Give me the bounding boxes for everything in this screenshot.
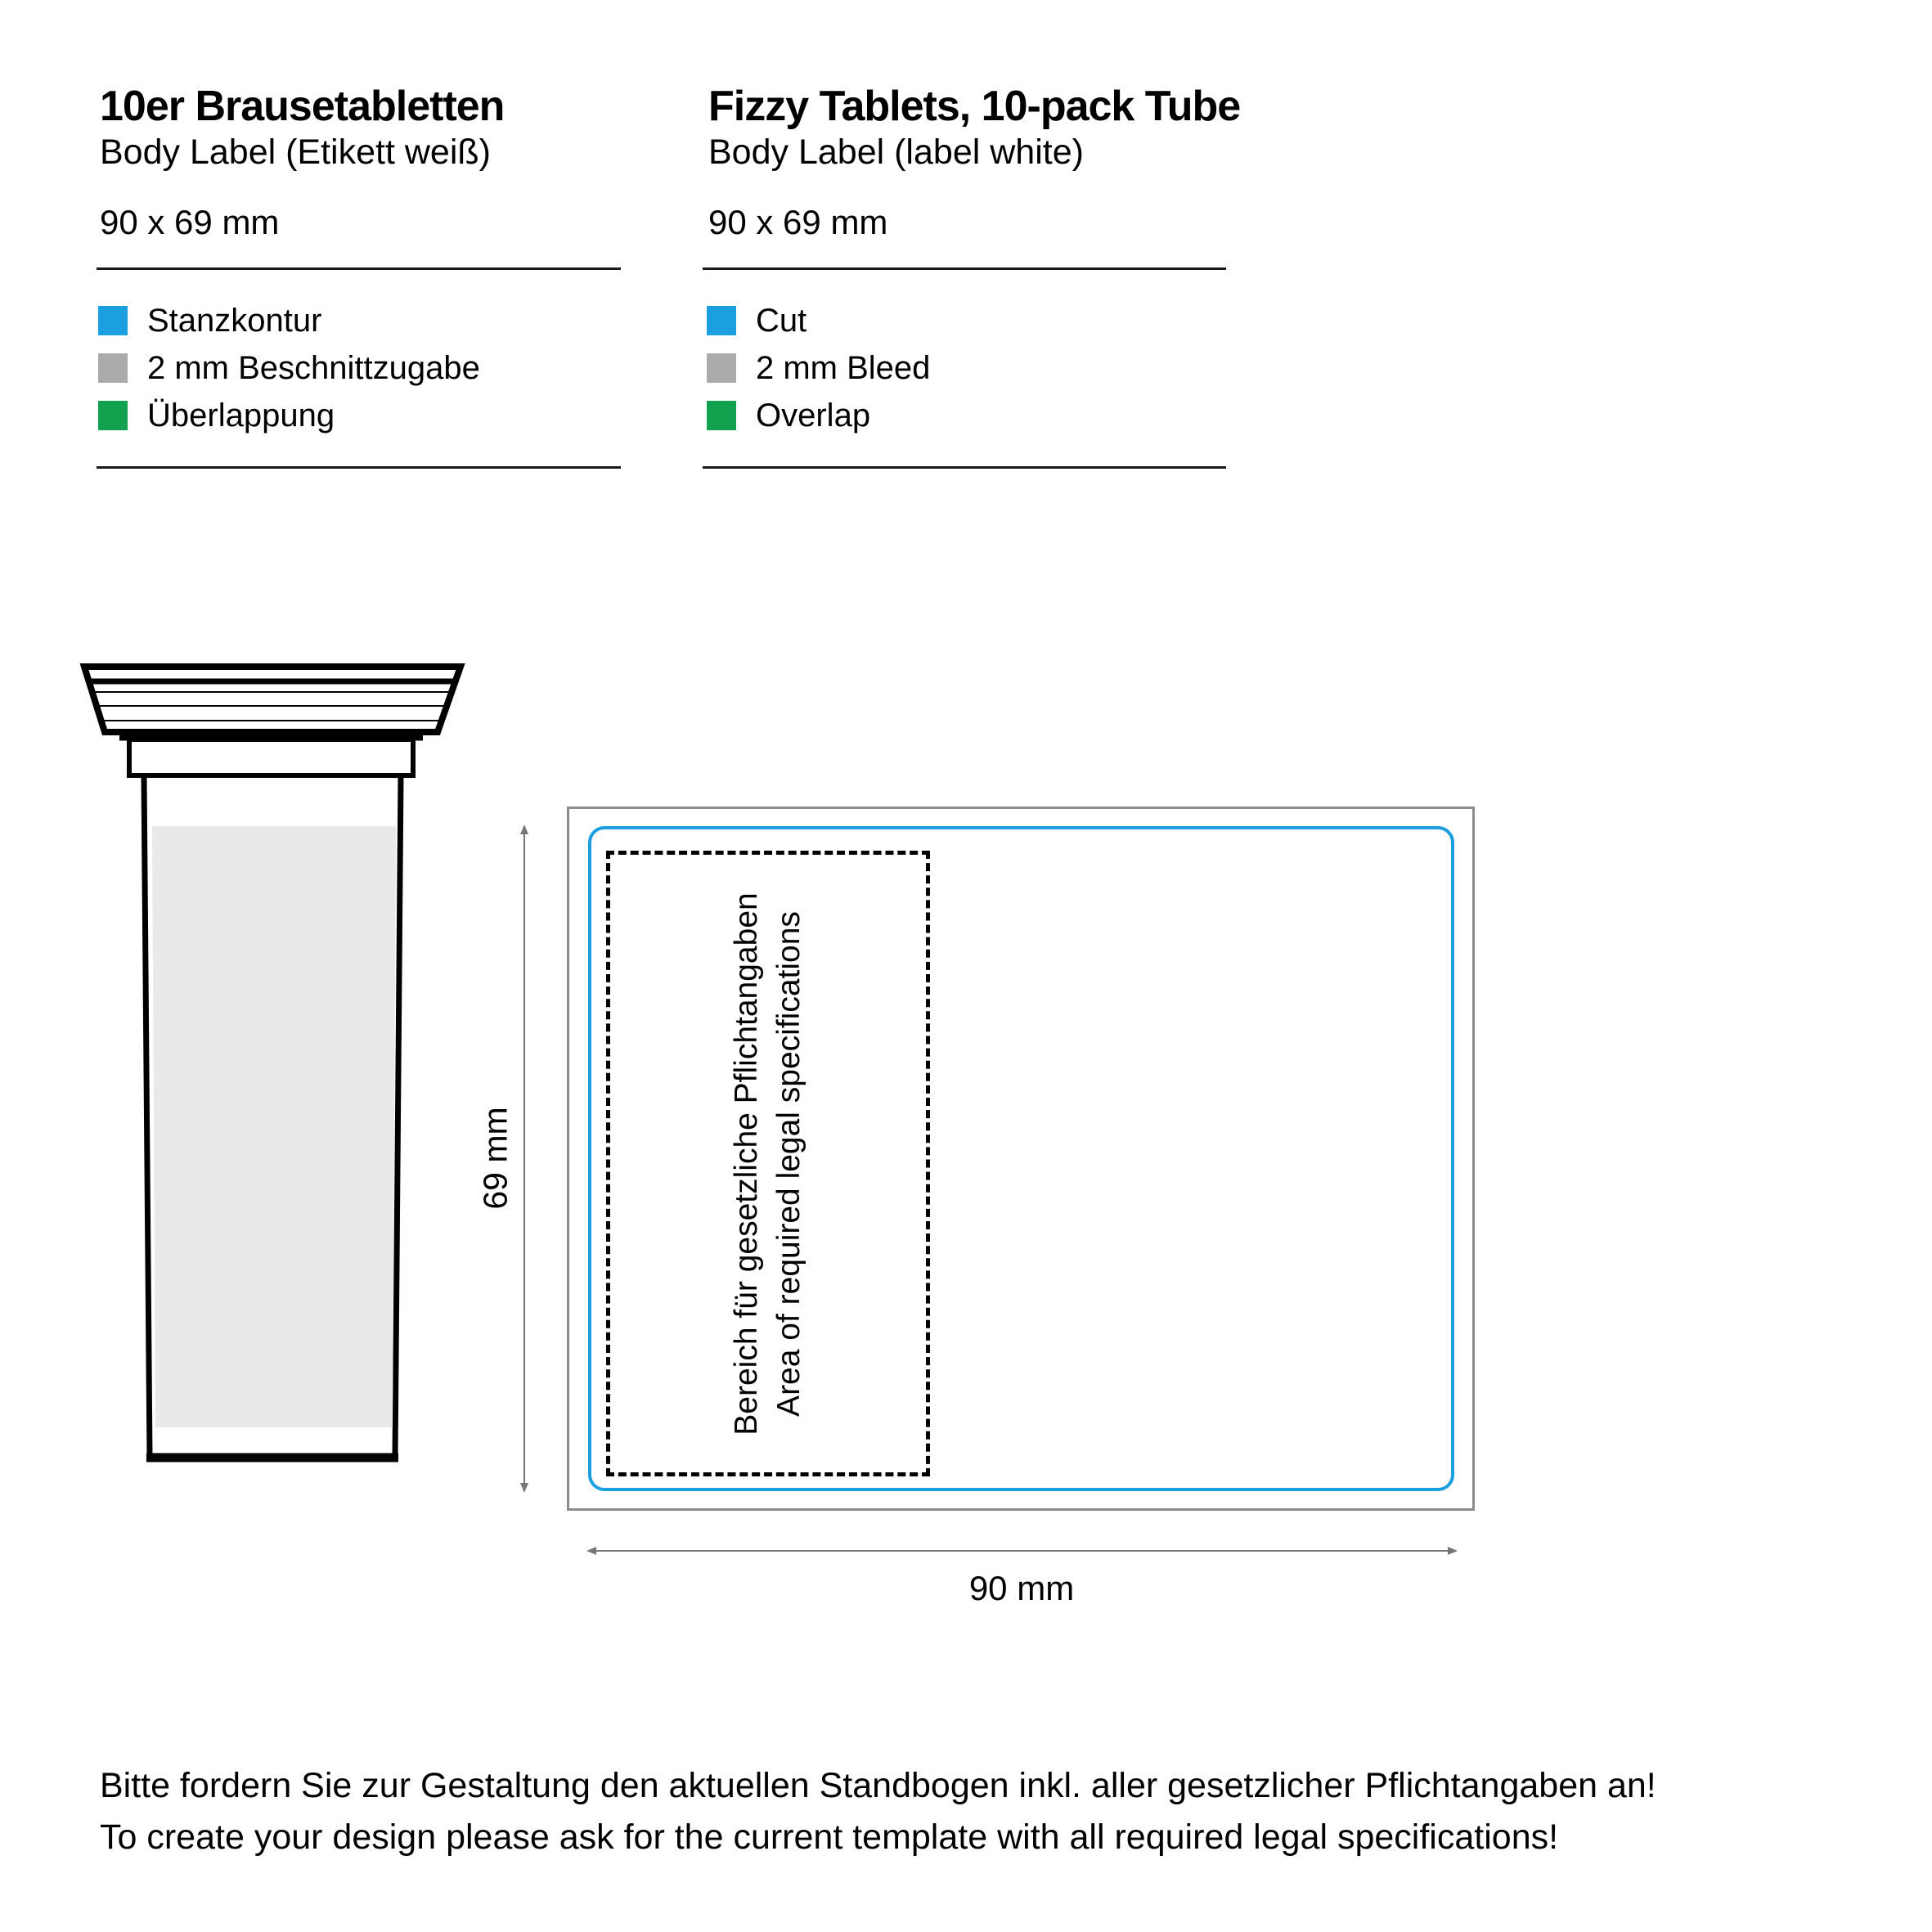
- legend-label: 2 mm Bleed: [756, 350, 930, 387]
- overlap-color-swatch: [707, 401, 736, 430]
- divider: [97, 466, 621, 469]
- divider: [97, 267, 621, 270]
- product-title-de: 10er Brausetabletten: [100, 82, 504, 131]
- overlap-color-swatch: [98, 401, 128, 430]
- tube-illustration: [74, 654, 466, 1472]
- legend-item-bleed: 2 mm Bleed: [707, 353, 930, 383]
- legend-item-cut: Cut: [707, 306, 930, 335]
- label-size-de: 90 x 69 mm: [100, 203, 504, 242]
- tube-label-area: [152, 826, 396, 1427]
- header-english: Fizzy Tablets, 10-pack Tube Body Label (…: [708, 82, 1240, 242]
- product-subtitle-en: Body Label (label white): [708, 131, 1240, 173]
- legal-area-caption: Bereich für gesetzliche Pflichtangaben A…: [726, 892, 811, 1435]
- bleed-color-swatch: [707, 353, 736, 383]
- print-spec-sheet: 10er Brausetabletten Body Label (Etikett…: [0, 0, 1932, 1932]
- legend-english: Cut 2 mm Bleed Overlap: [707, 306, 930, 448]
- cut-color-swatch: [98, 306, 128, 335]
- arrow-down-icon: [520, 1483, 528, 1493]
- legend-label: 2 mm Beschnittzugabe: [147, 350, 480, 387]
- bleed-color-swatch: [98, 353, 128, 383]
- footer-note: Bitte fordern Sie zur Gestaltung den akt…: [100, 1760, 1656, 1863]
- legend-item-bleed: 2 mm Beschnittzugabe: [98, 353, 480, 383]
- width-dimension-line: [588, 1550, 1456, 1552]
- arrow-right-icon: [1448, 1547, 1458, 1555]
- legal-caption-de: Bereich für gesetzliche Pflichtangaben: [726, 892, 768, 1435]
- legend-label: Overlap: [756, 398, 870, 434]
- legal-caption-en: Area of required legal specifications: [768, 892, 811, 1435]
- legend-label: Stanzkontur: [147, 303, 321, 339]
- footer-note-en: To create your design please ask for the…: [100, 1812, 1656, 1863]
- product-title-en: Fizzy Tablets, 10-pack Tube: [708, 82, 1240, 131]
- cut-color-swatch: [707, 306, 736, 335]
- legend-label: Cut: [756, 303, 806, 339]
- product-subtitle-de: Body Label (Etikett weiß): [100, 131, 504, 173]
- arrow-up-icon: [520, 824, 528, 834]
- footer-note-de: Bitte fordern Sie zur Gestaltung den akt…: [100, 1760, 1656, 1812]
- legend-german: Stanzkontur 2 mm Beschnittzugabe Überlap…: [98, 306, 480, 448]
- legal-specifications-area: Bereich für gesetzliche Pflichtangaben A…: [606, 851, 930, 1476]
- height-dimension-line: [523, 826, 525, 1491]
- arrow-left-icon: [586, 1547, 596, 1555]
- header-german: 10er Brausetabletten Body Label (Etikett…: [100, 82, 504, 242]
- height-dimension-label: 69 mm: [477, 1107, 515, 1209]
- legend-item-overlap: Overlap: [707, 401, 930, 430]
- width-dimension-label: 90 mm: [969, 1569, 1074, 1608]
- divider: [703, 466, 1226, 469]
- tube-cap: [84, 667, 461, 732]
- label-size-en: 90 x 69 mm: [708, 203, 1240, 242]
- legend-item-overlap: Überlappung: [98, 401, 480, 430]
- legend-item-cut: Stanzkontur: [98, 306, 480, 335]
- divider: [703, 267, 1226, 270]
- legend-label: Überlappung: [147, 398, 335, 434]
